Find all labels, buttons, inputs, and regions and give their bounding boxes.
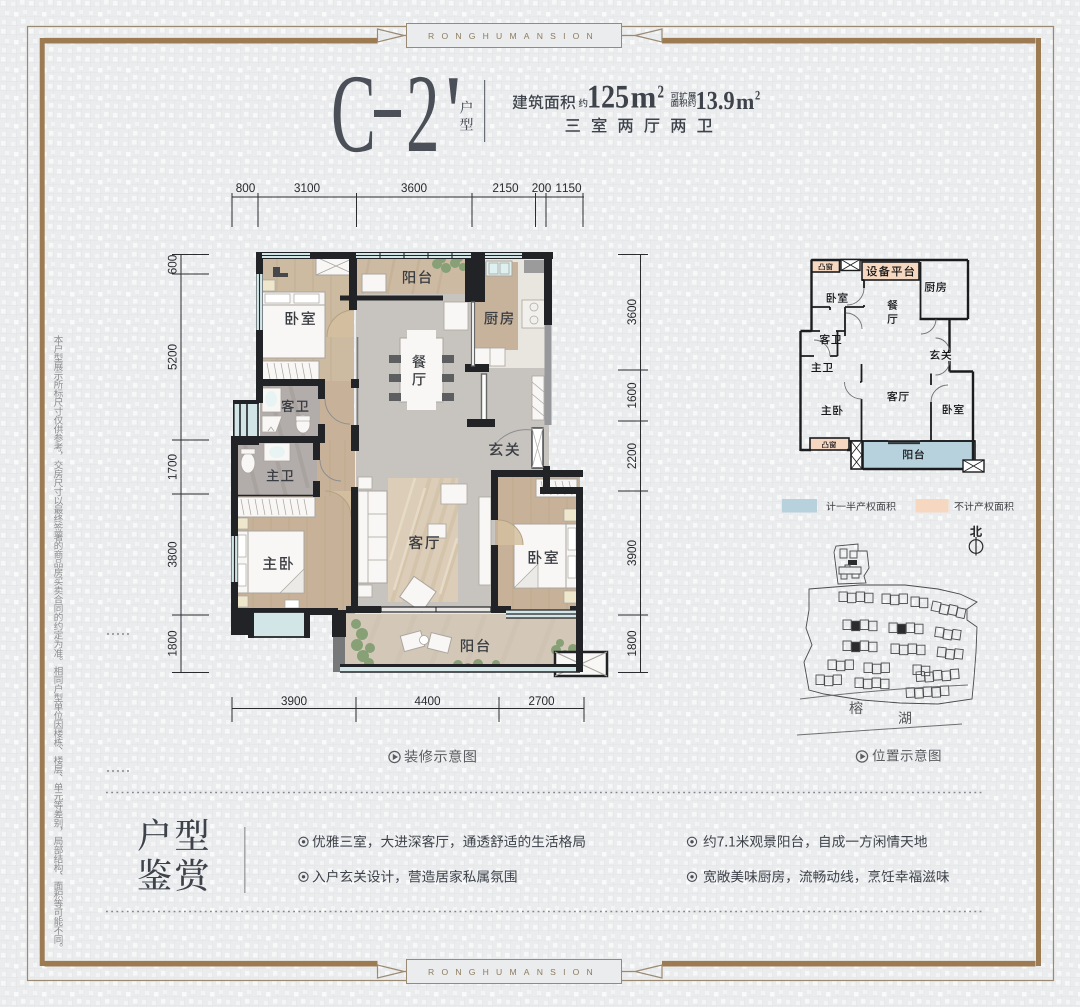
svg-text:RONGHUMANSION: RONGHUMANSION bbox=[428, 31, 600, 41]
svg-text:RONGHUMANSION: RONGHUMANSION bbox=[428, 967, 600, 977]
